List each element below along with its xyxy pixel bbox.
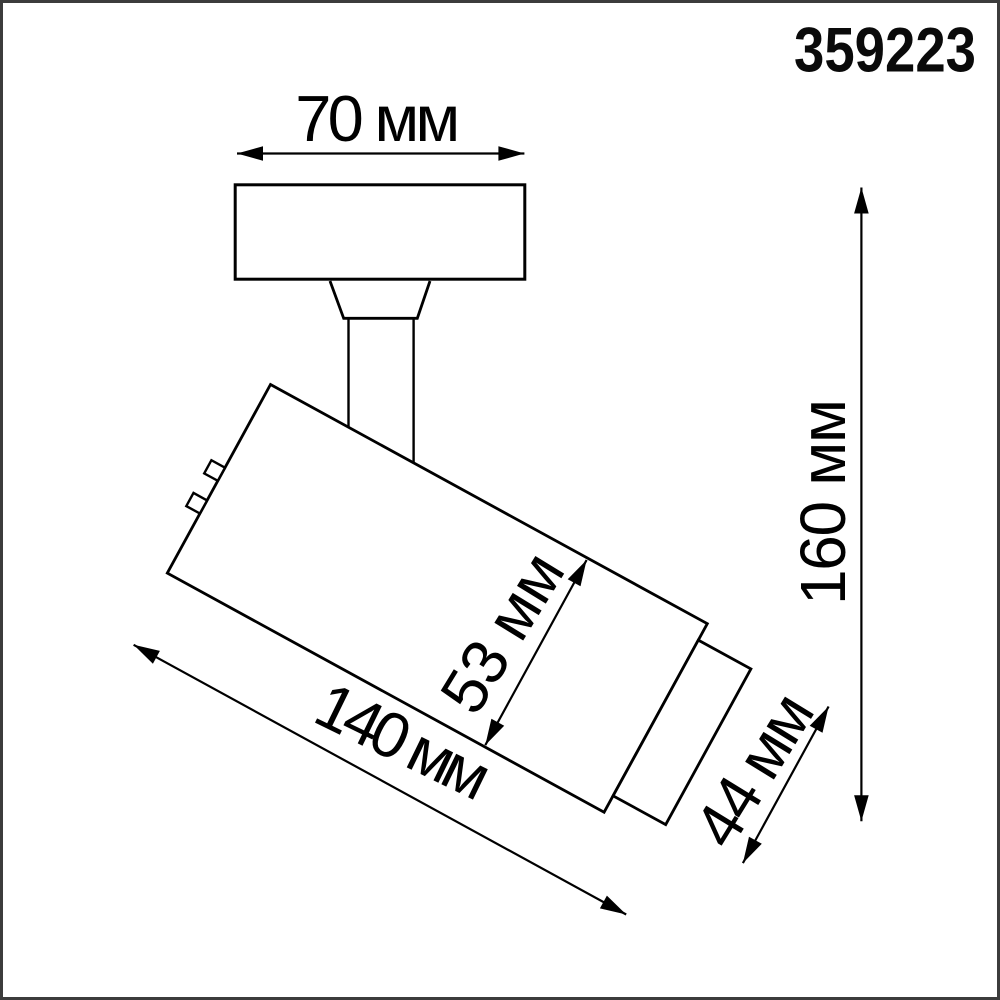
svg-text:160 мм: 160 мм [787, 399, 859, 605]
svg-text:359223: 359223 [794, 16, 976, 86]
svg-text:70 мм: 70 мм [295, 82, 460, 155]
